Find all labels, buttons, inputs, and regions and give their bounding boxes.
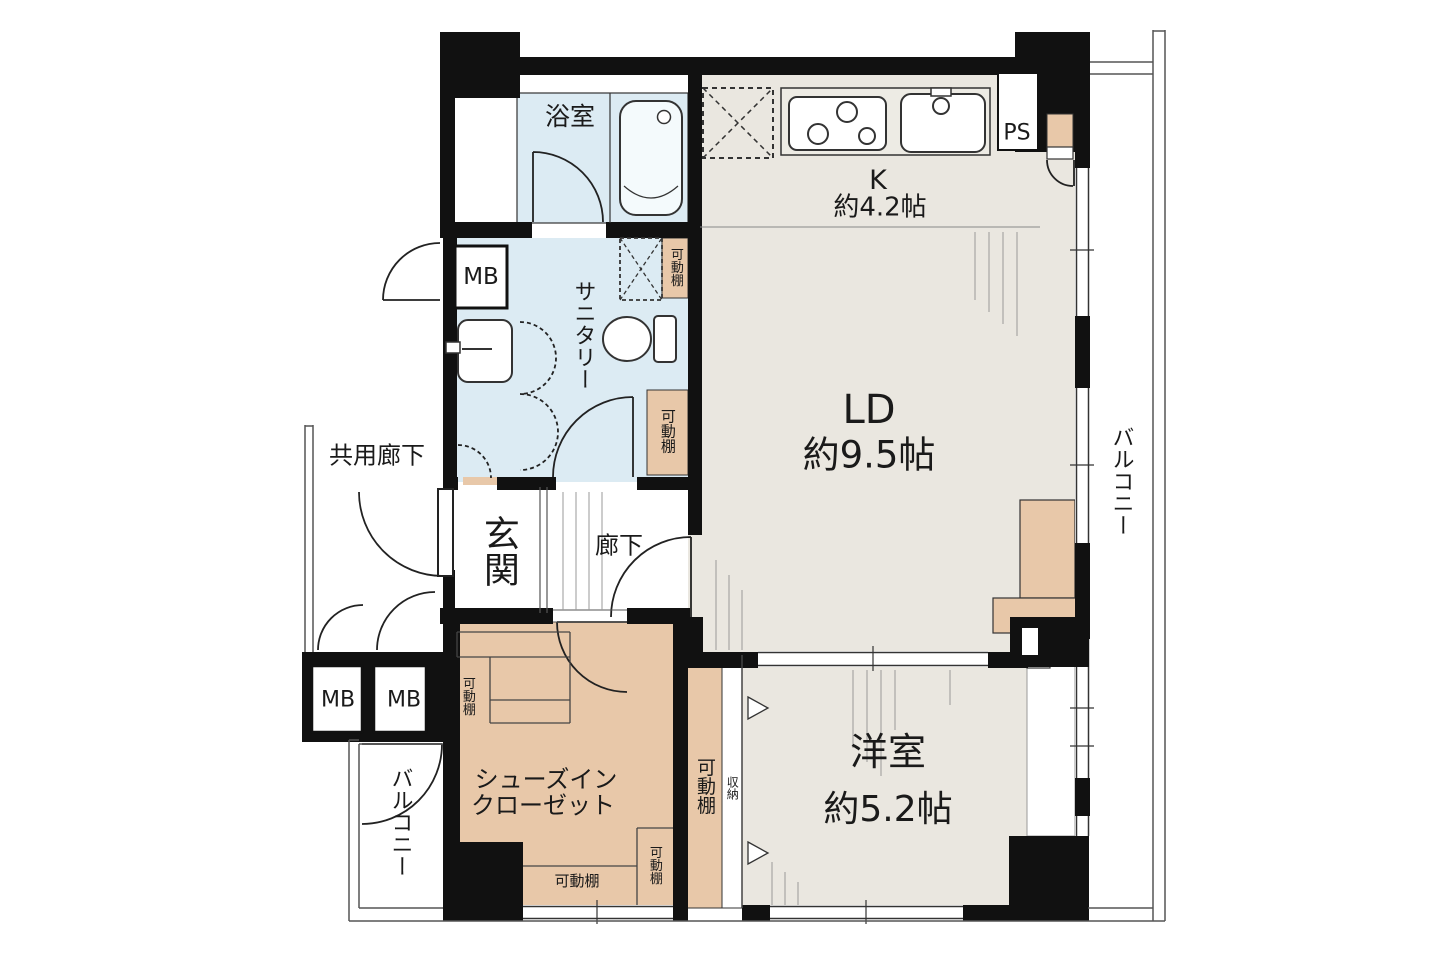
meter-box-1-door-arc bbox=[318, 605, 363, 650]
ld-label: LD bbox=[842, 389, 895, 431]
bathroom-fixtures bbox=[610, 93, 682, 223]
kitchen-balcony-door-leaf bbox=[1047, 114, 1073, 150]
mb-label-bottom-2: MB bbox=[387, 688, 421, 711]
balcony-right-top-divider bbox=[1090, 62, 1153, 74]
front-door-arc bbox=[359, 492, 443, 576]
western-room-label: 洋室 bbox=[850, 733, 926, 773]
common-corridor-label: 共用廊下 bbox=[329, 443, 425, 468]
toilet-tank-icon bbox=[654, 316, 676, 362]
ld-size-label: 約9.5帖 bbox=[803, 437, 936, 476]
floor-plan-drawing bbox=[0, 0, 1440, 960]
kitchen-size-label: 約4.2帖 bbox=[833, 194, 926, 221]
shelf-label-western-closet: 可動棚 bbox=[694, 758, 714, 815]
front-door-leaf bbox=[438, 489, 453, 576]
balcony-right-label: バルコニー bbox=[1109, 426, 1132, 536]
shelf-label-sic-left: 可動棚 bbox=[460, 677, 474, 716]
shelf-label-sic-right: 可動棚 bbox=[647, 846, 661, 885]
sic-label-line2: クローゼット bbox=[471, 793, 615, 818]
bathroom-label: 浴室 bbox=[545, 104, 595, 130]
bathtub-faucet-icon bbox=[658, 111, 671, 124]
storage-label: 収納 bbox=[726, 776, 739, 800]
hallway-label: 廊下 bbox=[595, 533, 643, 558]
mb-label-top: MB bbox=[463, 265, 499, 289]
sanitary-threshold bbox=[463, 477, 497, 485]
sanitary-label: サニタリー bbox=[571, 280, 594, 390]
sic-label-line1: シューズイン bbox=[475, 767, 618, 792]
wall-niche bbox=[1022, 628, 1038, 655]
western-room-size-label: 約5.2帖 bbox=[823, 791, 952, 829]
kitchen-label: K bbox=[869, 167, 887, 195]
western-room-window-bay bbox=[1027, 665, 1075, 836]
balcony-bottom-left-label: バルコニー bbox=[388, 767, 411, 877]
sink-faucet-icon bbox=[933, 98, 949, 114]
shelf-label-sic-bottom: 可動棚 bbox=[554, 874, 599, 890]
floor-plan: 浴室 K 約4.2帖 PS MB サニタリー 可動棚 可動棚 LD 約9.5帖 … bbox=[0, 0, 1440, 960]
ld-corner-structure-upper bbox=[1020, 500, 1075, 598]
mb-label-bottom-1: MB bbox=[321, 688, 355, 711]
shelf-label-sanitary-top: 可動棚 bbox=[668, 248, 682, 287]
shelf-label-sanitary-right: 可動棚 bbox=[659, 409, 675, 454]
washbasin-icon bbox=[458, 320, 512, 382]
ps-label: PS bbox=[1003, 121, 1030, 144]
toilet-icon bbox=[603, 317, 651, 361]
meter-box-2-door-arc bbox=[377, 592, 435, 650]
meter-box-top-door-arc bbox=[383, 243, 440, 300]
kitchen-balcony-door-sill bbox=[1047, 147, 1073, 159]
common-corridor-line bbox=[305, 425, 313, 652]
entrance-label: 玄関 bbox=[479, 515, 517, 587]
balcony-right-outline bbox=[1153, 30, 1165, 921]
